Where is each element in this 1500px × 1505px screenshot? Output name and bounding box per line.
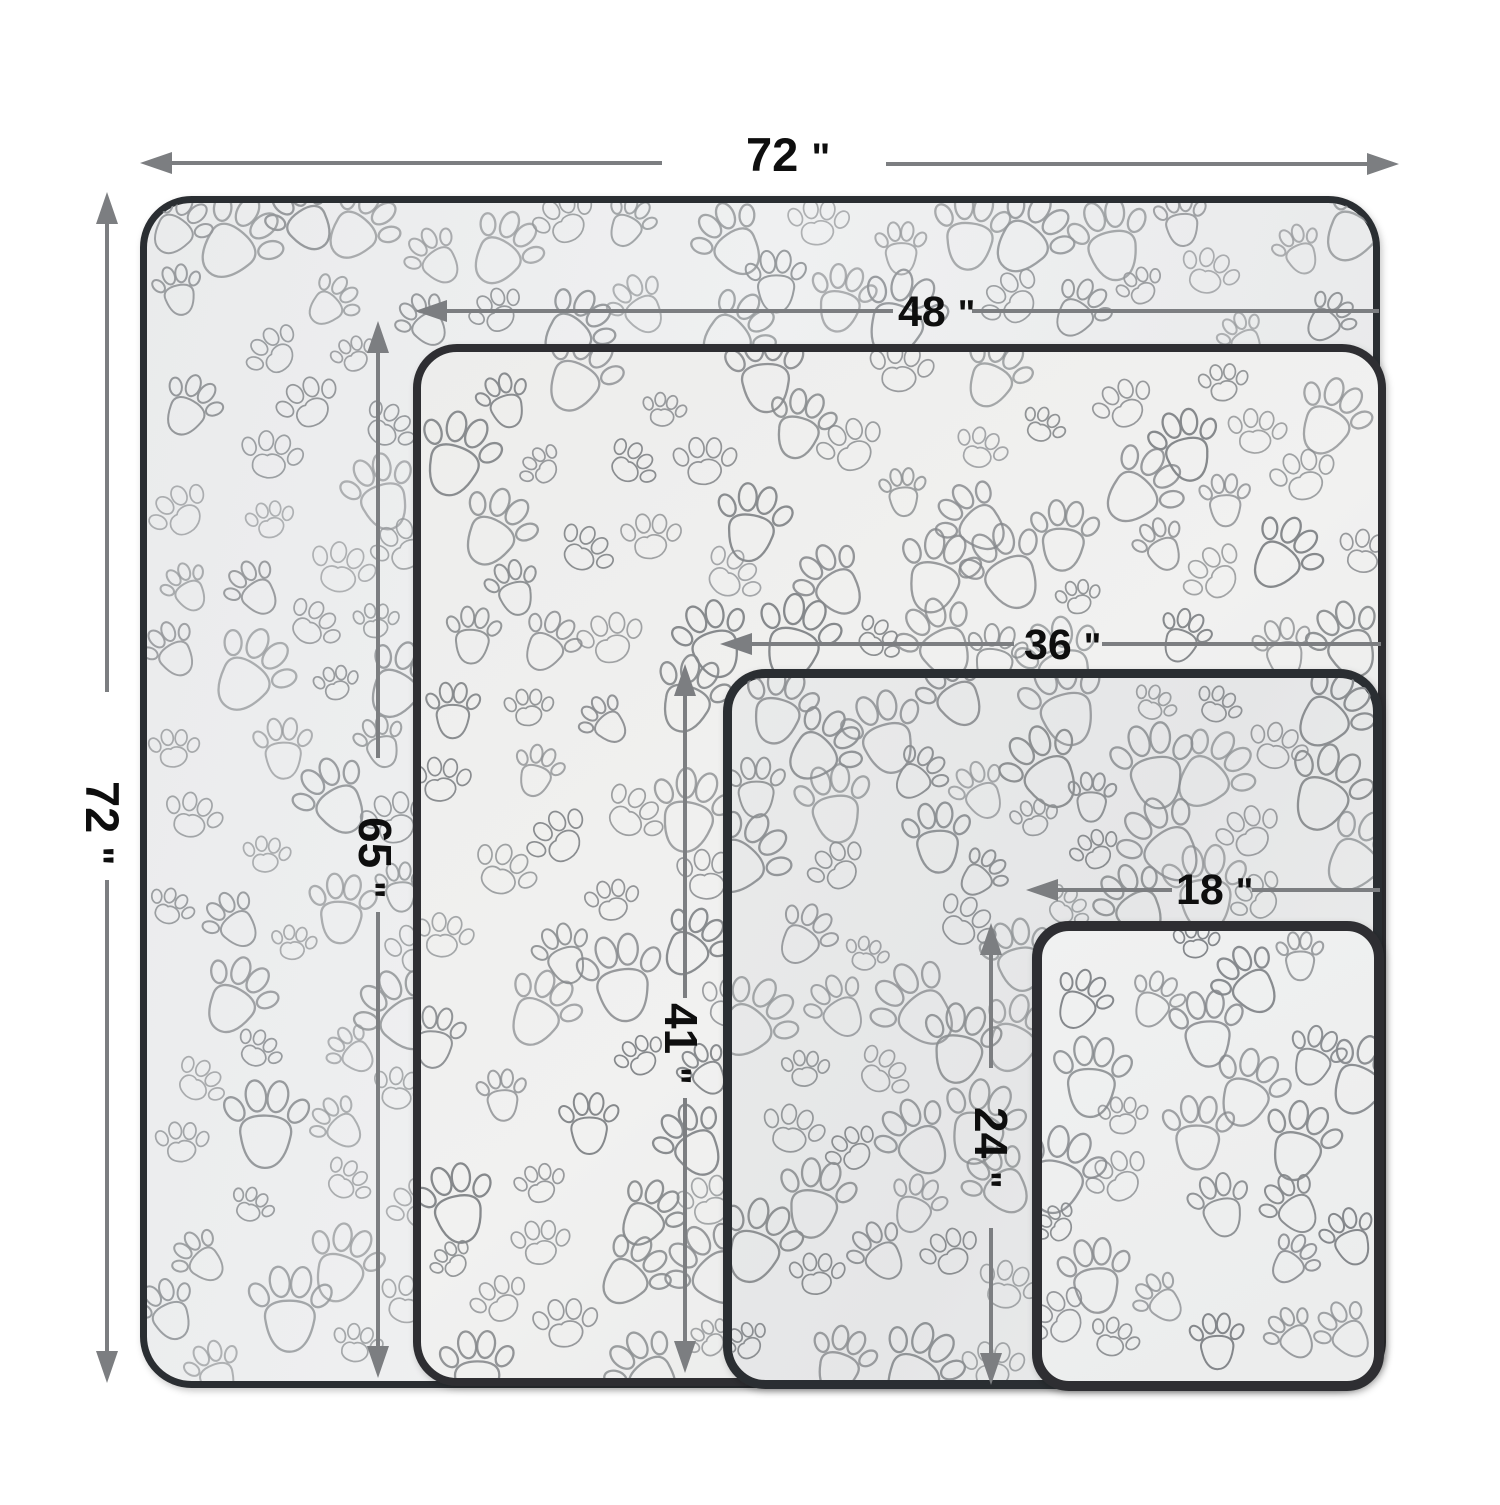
svg-text:48 ": 48 " xyxy=(898,288,975,336)
svg-text:36 ": 36 " xyxy=(1024,621,1101,669)
svg-text:72 ": 72 " xyxy=(76,781,129,865)
svg-text:72 ": 72 " xyxy=(746,128,830,181)
svg-text:18 ": 18 " xyxy=(1176,866,1253,914)
